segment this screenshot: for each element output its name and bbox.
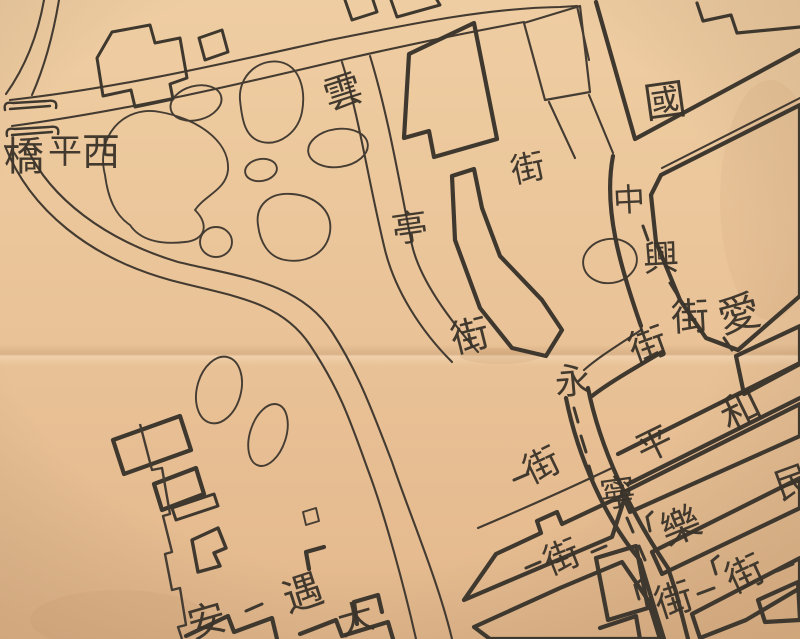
street-label: 永 [553, 360, 592, 404]
street-label: 平 [48, 132, 82, 172]
street-label: 街 [670, 294, 710, 340]
street-label: 橋 [4, 134, 44, 180]
map-viewport: 橋平西雲亭街街國中興街愛街永寧街和平街樂街街民遇安大 [0, 0, 800, 639]
street-label: 寧 [597, 471, 638, 517]
street-label: 興 [642, 238, 680, 281]
fold-crease [0, 344, 800, 366]
street-label: 國 [641, 74, 689, 128]
street-label: 中 [612, 180, 646, 220]
street-label: 亭 [389, 206, 430, 252]
map-canvas: 橋平西雲亭街街國中興街愛街永寧街和平街樂街街民遇安大 [0, 0, 800, 639]
street-label: 西 [82, 130, 120, 174]
